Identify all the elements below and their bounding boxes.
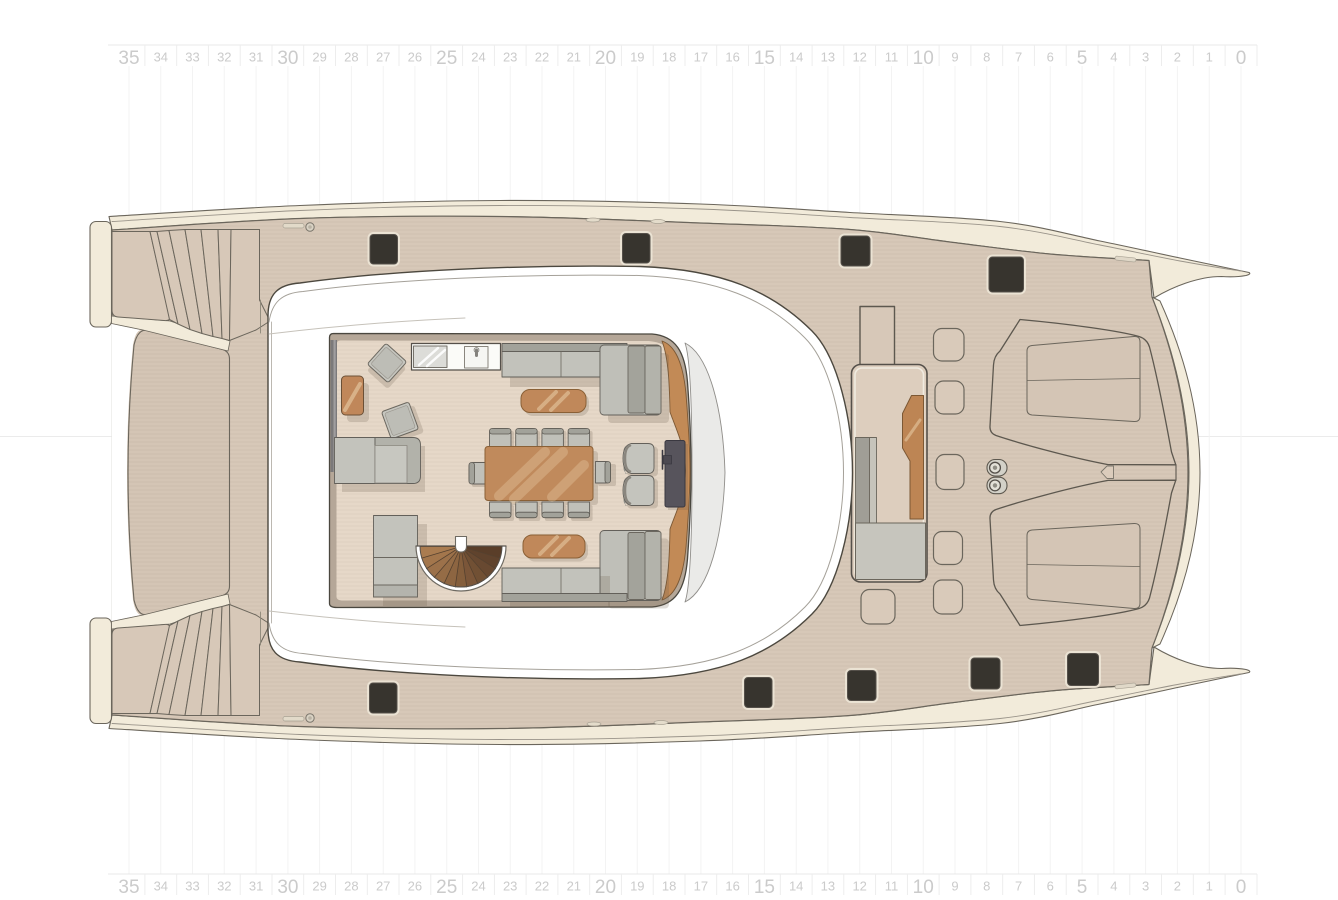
svg-text:34: 34 <box>154 50 168 65</box>
svg-text:0: 0 <box>1236 877 1247 898</box>
svg-text:4: 4 <box>1110 879 1117 894</box>
svg-text:3: 3 <box>1142 50 1149 65</box>
svg-text:20: 20 <box>595 48 616 69</box>
svg-text:22: 22 <box>535 879 549 894</box>
svg-text:9: 9 <box>951 50 958 65</box>
svg-text:17: 17 <box>694 879 708 894</box>
svg-text:30: 30 <box>277 877 298 898</box>
svg-text:14: 14 <box>789 50 803 65</box>
svg-text:21: 21 <box>567 50 581 65</box>
svg-text:5: 5 <box>1077 877 1088 898</box>
svg-text:30: 30 <box>277 48 298 69</box>
svg-text:33: 33 <box>185 879 199 894</box>
svg-text:10: 10 <box>913 877 934 898</box>
svg-text:2: 2 <box>1174 50 1181 65</box>
svg-text:7: 7 <box>1015 879 1022 894</box>
svg-text:6: 6 <box>1047 879 1054 894</box>
svg-text:32: 32 <box>217 879 231 894</box>
svg-text:21: 21 <box>567 879 581 894</box>
svg-text:29: 29 <box>312 879 326 894</box>
svg-text:0: 0 <box>1236 48 1247 69</box>
svg-text:25: 25 <box>436 877 457 898</box>
svg-text:15: 15 <box>754 48 775 69</box>
svg-text:3: 3 <box>1142 879 1149 894</box>
svg-text:9: 9 <box>951 879 958 894</box>
svg-text:1: 1 <box>1206 50 1213 65</box>
svg-text:35: 35 <box>118 48 139 69</box>
svg-text:7: 7 <box>1015 50 1022 65</box>
svg-text:28: 28 <box>344 50 358 65</box>
svg-text:11: 11 <box>885 879 899 894</box>
svg-text:6: 6 <box>1047 50 1054 65</box>
svg-text:16: 16 <box>725 50 739 65</box>
svg-text:18: 18 <box>662 879 676 894</box>
svg-text:14: 14 <box>789 879 803 894</box>
svg-text:23: 23 <box>503 50 517 65</box>
svg-text:31: 31 <box>249 50 263 65</box>
svg-text:17: 17 <box>694 50 708 65</box>
svg-text:28: 28 <box>344 879 358 894</box>
svg-text:25: 25 <box>436 48 457 69</box>
svg-text:24: 24 <box>471 879 485 894</box>
svg-text:33: 33 <box>185 50 199 65</box>
svg-text:19: 19 <box>630 879 644 894</box>
svg-text:23: 23 <box>503 879 517 894</box>
svg-text:13: 13 <box>821 50 835 65</box>
svg-text:18: 18 <box>662 50 676 65</box>
svg-text:12: 12 <box>852 50 866 65</box>
svg-text:19: 19 <box>630 50 644 65</box>
svg-text:27: 27 <box>376 50 390 65</box>
svg-text:15: 15 <box>754 877 775 898</box>
svg-text:11: 11 <box>885 50 899 65</box>
svg-text:8: 8 <box>983 879 990 894</box>
svg-text:10: 10 <box>913 48 934 69</box>
svg-text:29: 29 <box>312 50 326 65</box>
svg-text:24: 24 <box>471 50 485 65</box>
svg-text:12: 12 <box>852 879 866 894</box>
svg-text:20: 20 <box>595 877 616 898</box>
svg-text:35: 35 <box>118 877 139 898</box>
svg-text:1: 1 <box>1206 879 1213 894</box>
svg-text:26: 26 <box>408 879 422 894</box>
svg-text:34: 34 <box>154 879 168 894</box>
svg-text:27: 27 <box>376 879 390 894</box>
svg-text:32: 32 <box>217 50 231 65</box>
svg-text:26: 26 <box>408 50 422 65</box>
svg-text:16: 16 <box>725 879 739 894</box>
svg-text:4: 4 <box>1110 50 1117 65</box>
svg-text:31: 31 <box>249 879 263 894</box>
svg-text:2: 2 <box>1174 879 1181 894</box>
svg-text:13: 13 <box>821 879 835 894</box>
svg-text:22: 22 <box>535 50 549 65</box>
svg-text:8: 8 <box>983 50 990 65</box>
svg-text:5: 5 <box>1077 48 1088 69</box>
